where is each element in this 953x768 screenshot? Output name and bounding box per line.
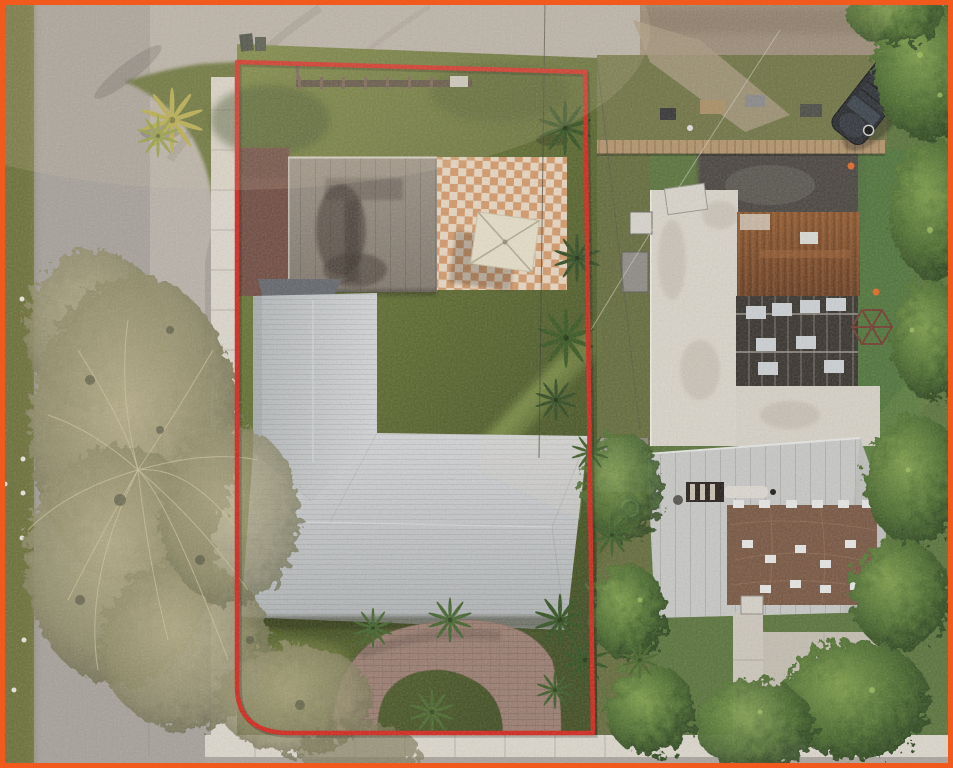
photo-grain <box>0 0 953 768</box>
mls-photo-frame <box>0 0 953 768</box>
aerial-photo <box>0 0 953 768</box>
